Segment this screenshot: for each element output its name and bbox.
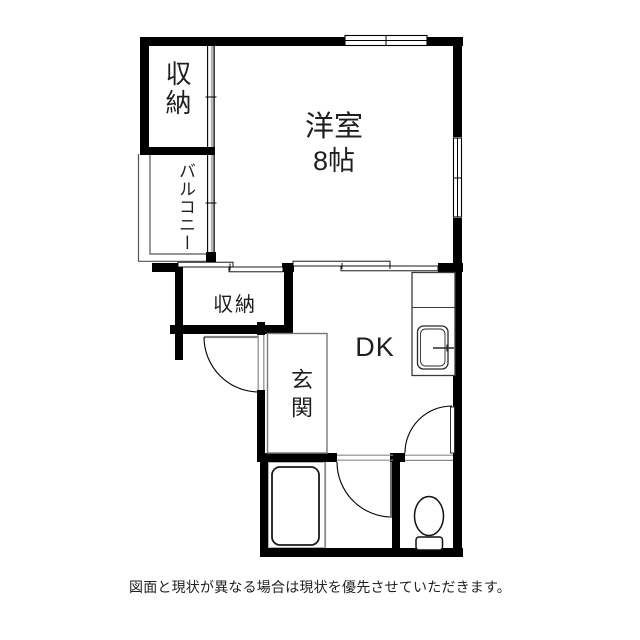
sliding-door-storage (178, 262, 283, 272)
western-room-label: 洋室 8帖 (264, 110, 404, 178)
sliding-door-room (293, 261, 438, 271)
balcony-label: バルコニー (173, 162, 198, 252)
dining-kitchen-label: DK (342, 332, 408, 363)
entry-door (204, 335, 265, 392)
toilet-fixture (415, 497, 444, 551)
floor-plan-drawing (0, 0, 640, 640)
storage-top-label: 収納 (159, 60, 196, 118)
disclaimer-text: 図面と現状が異なる場合は現状を優先させていただきます。 (129, 577, 511, 597)
washroom-door (337, 455, 393, 517)
window-right (454, 138, 462, 217)
kitchen-sink-fixture (412, 273, 455, 376)
window-top (345, 36, 427, 46)
floor-plan-page: 収納 バルコニー 洋室 8帖 収納 DK 玄関 図面と現状が異なる場合は現状を優… (0, 0, 640, 640)
western-room-size: 8帖 (264, 145, 404, 178)
western-room-name: 洋室 (305, 111, 363, 143)
storage-middle-label: 収納 (186, 288, 284, 317)
bathtub-fixture (269, 462, 326, 548)
toilet-door (405, 406, 455, 460)
entrance-label: 玄関 (284, 368, 316, 424)
